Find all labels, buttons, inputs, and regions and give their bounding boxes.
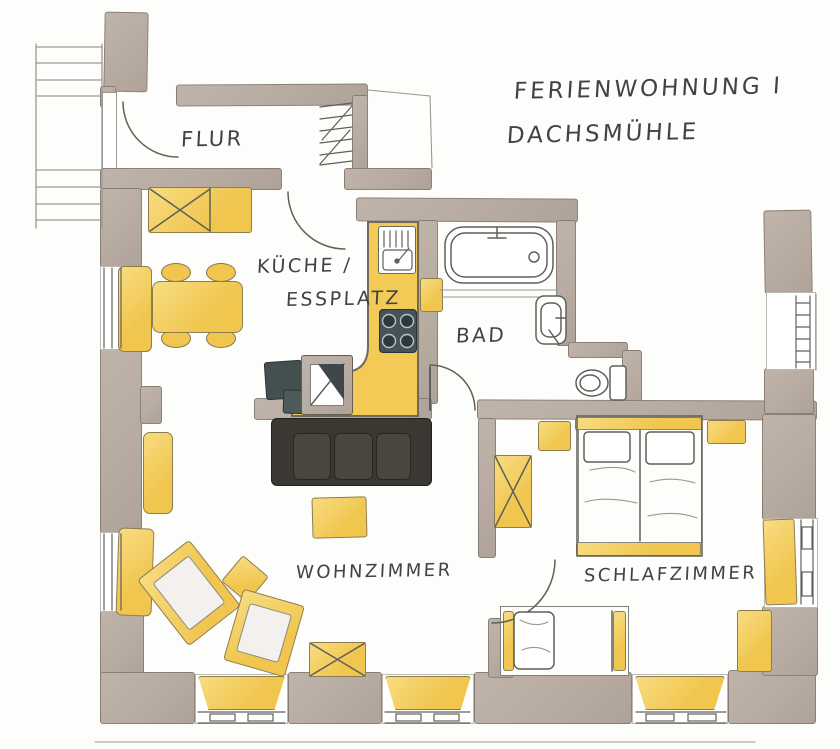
floor-plan: FERIENWOHNUNG I DACHSMÜHLE FLUR KÜCHE / … <box>0 0 840 749</box>
wall-bath-right <box>556 220 576 346</box>
cabinet-bottom-right <box>737 610 772 672</box>
hall-wardrobe <box>148 187 252 233</box>
nightstand-left <box>538 421 571 451</box>
room-label-flur: FLUR <box>180 126 244 151</box>
wall-wc-alcove-top <box>568 342 628 358</box>
wall-bottom-seg3 <box>474 672 632 724</box>
wall-right-upper <box>763 210 812 295</box>
stove <box>379 309 417 353</box>
armchair-1-cushion <box>152 555 225 631</box>
room-label-wohnzimmer: WOHNZIMMER <box>295 560 453 584</box>
wall-left-mid <box>100 348 142 534</box>
radiator-bedroom-right <box>763 518 798 605</box>
cross-table <box>309 642 366 677</box>
wall-bath-left <box>418 220 438 404</box>
wall-above-entrance <box>103 12 148 93</box>
radiator-bottom-1 <box>198 676 285 710</box>
sofa-cushion-2 <box>334 433 373 480</box>
room-label-kueche-line1: KÜCHE / <box>256 254 353 278</box>
dining-chair-1 <box>161 263 191 282</box>
wall-flur-top <box>176 83 368 106</box>
radiator-bottom-bedroom <box>635 676 725 710</box>
bath-wall-radiator <box>420 278 443 312</box>
sofa-cushion-1 <box>293 433 331 480</box>
kitchen-sink-unit <box>378 226 416 274</box>
dining-bench <box>118 266 152 352</box>
entrance-door-arc <box>123 102 178 157</box>
window-right-upper <box>766 292 816 370</box>
wall-kitchen-top <box>356 197 578 222</box>
radiator-flur-symbol <box>320 103 352 165</box>
single-bed-foot-rail <box>613 611 626 671</box>
wall-flur-right <box>352 95 368 173</box>
wall-right-mid <box>764 368 814 414</box>
wall-left-upper <box>100 188 142 268</box>
bedroom-wardrobe <box>494 455 532 528</box>
double-bed-footboard <box>576 542 701 556</box>
plan-title-line2: DACHSMÜHLE <box>506 119 700 149</box>
nightstand-right <box>707 420 746 444</box>
wall-bottom-corner-left <box>100 672 195 724</box>
room-label-kueche-line2: ESSPLATZ <box>285 287 401 311</box>
wall-bottom-corner-right <box>728 670 816 724</box>
single-bed <box>500 606 629 676</box>
chimney-inset <box>310 364 344 406</box>
room-label-bad: BAD <box>455 323 507 348</box>
plan-title-line1: FERIENWOHNUNG I <box>513 73 784 105</box>
radiator-bottom-2 <box>385 676 471 710</box>
flur-kitchen-door-arc <box>288 192 345 249</box>
radiator-left-mid <box>143 432 173 514</box>
wall-bedroom-right <box>762 414 816 520</box>
armchair-2-cushion <box>236 603 292 663</box>
flur-left-wall-thin <box>102 92 117 170</box>
stairs-outside <box>36 44 102 228</box>
wall-flur-bottom-right <box>344 168 432 190</box>
wall-left-lower <box>100 610 144 680</box>
room-label-schlafzimmer: SCHLAFZIMMER <box>583 562 758 586</box>
dining-table <box>152 281 243 333</box>
coffee-table <box>311 496 367 538</box>
toilet <box>576 366 626 400</box>
dining-chair-2 <box>206 263 236 282</box>
wall-bottom-seg2 <box>288 672 382 724</box>
double-bed-mattress <box>578 429 702 543</box>
wall-left-niche <box>140 386 162 424</box>
single-bed-head-rail <box>503 611 514 671</box>
sofa-cushion-3 <box>376 433 411 480</box>
bathtub <box>440 227 558 297</box>
